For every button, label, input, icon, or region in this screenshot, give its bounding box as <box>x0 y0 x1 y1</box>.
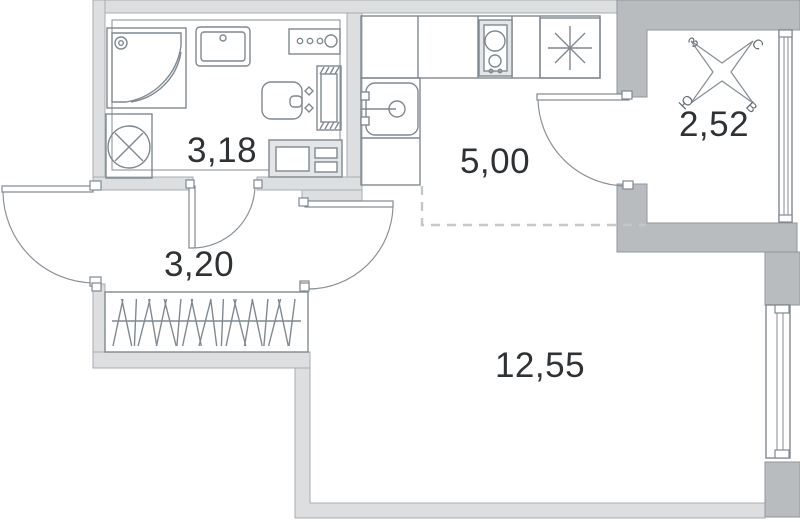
shower-icon <box>107 28 186 108</box>
washing-machine-icon <box>106 114 152 178</box>
floor-plan: 3,18 3,20 5,00 12,55 2,52 З С Ю В <box>0 0 800 522</box>
floor-plan-drawing <box>0 0 800 522</box>
wall <box>93 0 617 13</box>
room-label-living-room: 12,55 <box>495 346 585 386</box>
wall <box>93 177 193 190</box>
refrigerator-icon <box>540 18 600 78</box>
wardrobe-jamb <box>92 283 101 291</box>
window-icon <box>766 305 790 458</box>
wall <box>257 177 362 190</box>
wall-pier <box>765 252 800 305</box>
room-door <box>299 198 393 289</box>
wall <box>93 0 105 186</box>
bathroom-door <box>186 180 262 248</box>
wall-pier <box>765 462 800 517</box>
compass-rose-icon <box>691 41 753 103</box>
room-label-hallway: 3,20 <box>164 245 234 285</box>
zone-boundary-dashed-line <box>422 186 646 225</box>
bathroom-sink-icon <box>196 27 250 66</box>
wall <box>295 368 765 518</box>
balcony-window-icon <box>779 30 792 222</box>
kitchen-sink-icon <box>361 83 418 135</box>
stove-icon <box>479 20 512 76</box>
wall <box>93 352 310 368</box>
balcony-wall <box>617 184 797 252</box>
appliance-panel-icon <box>289 29 340 54</box>
entrance-door <box>2 181 101 286</box>
wardrobe-jamb <box>300 283 309 291</box>
wardrobe-hangers-icon <box>105 292 308 352</box>
toilet-icon <box>262 82 313 119</box>
toilet-frame-icon <box>317 66 341 130</box>
wall <box>347 13 362 177</box>
balcony-door <box>537 91 633 189</box>
room-label-bathroom: 3,18 <box>187 131 257 171</box>
room-label-kitchen: 5,00 <box>460 142 530 182</box>
bathroom-cabinet-icon <box>269 140 342 177</box>
